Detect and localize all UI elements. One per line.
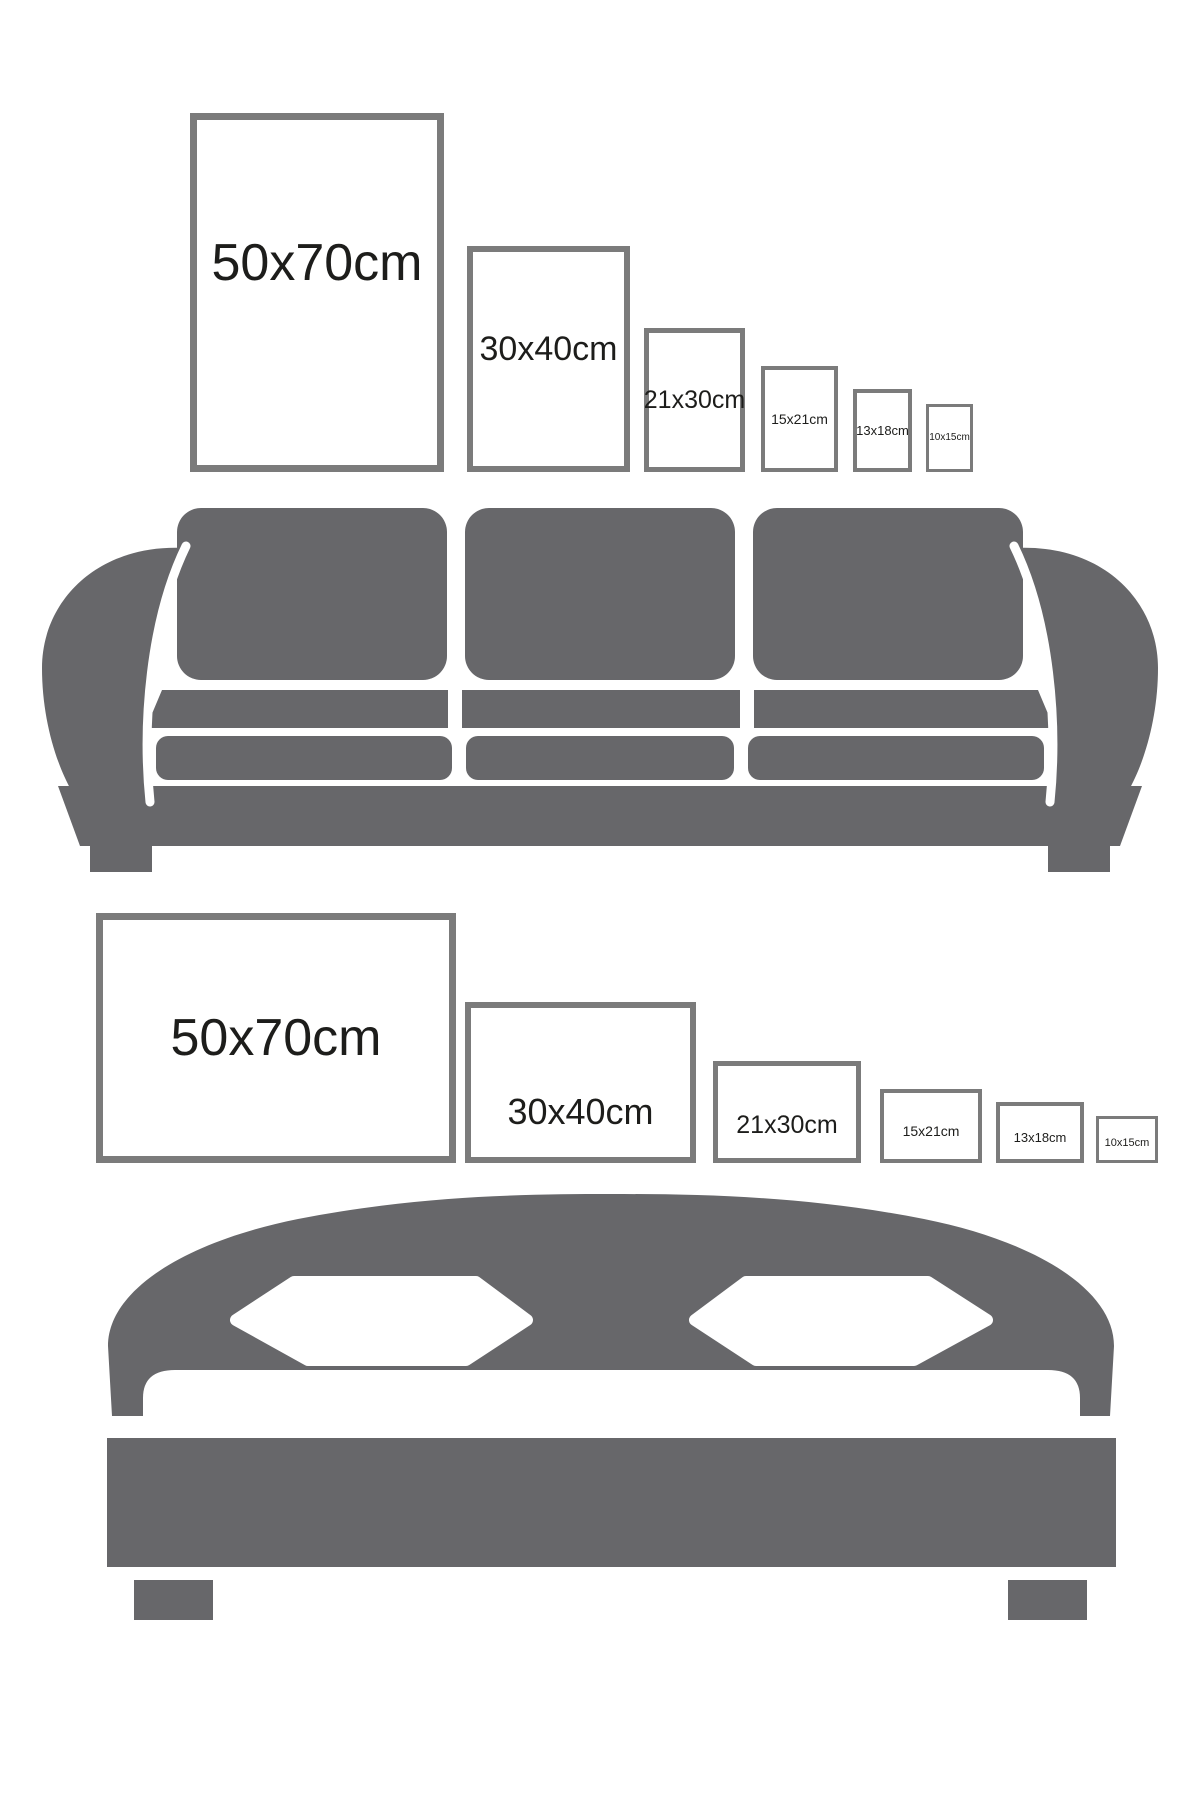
size-frame-portrait-15x21: 15x21cm [761, 366, 838, 472]
size-frame-portrait-13x18: 13x18cm [853, 389, 912, 472]
size-label: 15x21cm [771, 412, 828, 426]
pillow-cutout-right [695, 1282, 987, 1360]
size-label: 15x21cm [903, 1124, 960, 1138]
pillow-cutout-left [236, 1282, 527, 1360]
size-frame-landscape-13x18: 13x18cm [996, 1102, 1084, 1163]
size-label: 10x15cm [929, 433, 970, 443]
size-label: 10x15cm [1105, 1138, 1150, 1149]
size-label: 13x18cm [856, 424, 909, 437]
size-frame-landscape-21x30: 21x30cm [713, 1061, 861, 1163]
poster-size-guide: 50x70cm 30x40cm 21x30cm 15x21cm 13x18cm … [0, 0, 1200, 1800]
bed-icon [107, 1194, 1116, 1620]
size-label: 21x30cm [736, 1113, 837, 1138]
size-label: 30x40cm [480, 332, 618, 366]
size-frame-landscape-10x15: 10x15cm [1096, 1116, 1158, 1163]
size-label: 50x70cm [171, 1012, 382, 1064]
size-label: 30x40cm [507, 1094, 653, 1130]
size-frame-landscape-50x70: 50x70cm [96, 913, 456, 1163]
size-frame-portrait-30x40: 30x40cm [467, 246, 630, 472]
size-label: 50x70cm [212, 237, 423, 289]
size-frame-portrait-50x70: 50x70cm [190, 113, 444, 472]
size-frame-landscape-30x40: 30x40cm [465, 1002, 696, 1163]
size-frame-portrait-21x30: 21x30cm [644, 328, 745, 472]
size-frame-portrait-10x15: 10x15cm [926, 404, 973, 472]
sofa-icon [42, 508, 1158, 872]
size-label: 21x30cm [644, 388, 745, 413]
size-frame-landscape-15x21: 15x21cm [880, 1089, 982, 1163]
size-label: 13x18cm [1014, 1131, 1067, 1144]
